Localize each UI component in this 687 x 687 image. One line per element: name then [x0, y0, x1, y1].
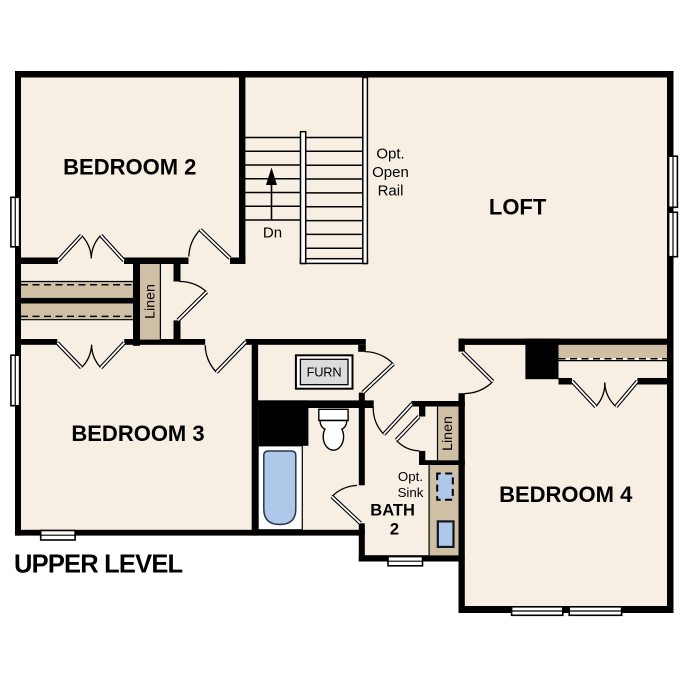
svg-text:LOFT: LOFT: [489, 195, 547, 220]
svg-text:Linen: Linen: [440, 416, 456, 451]
svg-text:Dn: Dn: [263, 225, 282, 242]
svg-text:Linen: Linen: [142, 284, 158, 319]
svg-text:Open: Open: [372, 164, 409, 181]
svg-text:Sink: Sink: [398, 485, 424, 500]
svg-text:Opt.: Opt.: [376, 146, 404, 163]
svg-text:BEDROOM 2: BEDROOM 2: [63, 155, 196, 180]
svg-text:Rail: Rail: [378, 183, 404, 200]
svg-text:2: 2: [390, 521, 399, 539]
svg-text:UPPER LEVEL: UPPER LEVEL: [14, 551, 183, 579]
svg-text:BEDROOM 3: BEDROOM 3: [71, 421, 204, 446]
svg-text:BEDROOM 4: BEDROOM 4: [499, 482, 633, 507]
svg-text:BATH: BATH: [370, 502, 415, 520]
svg-text:FURN: FURN: [307, 365, 342, 380]
svg-text:Opt.: Opt.: [398, 469, 423, 484]
